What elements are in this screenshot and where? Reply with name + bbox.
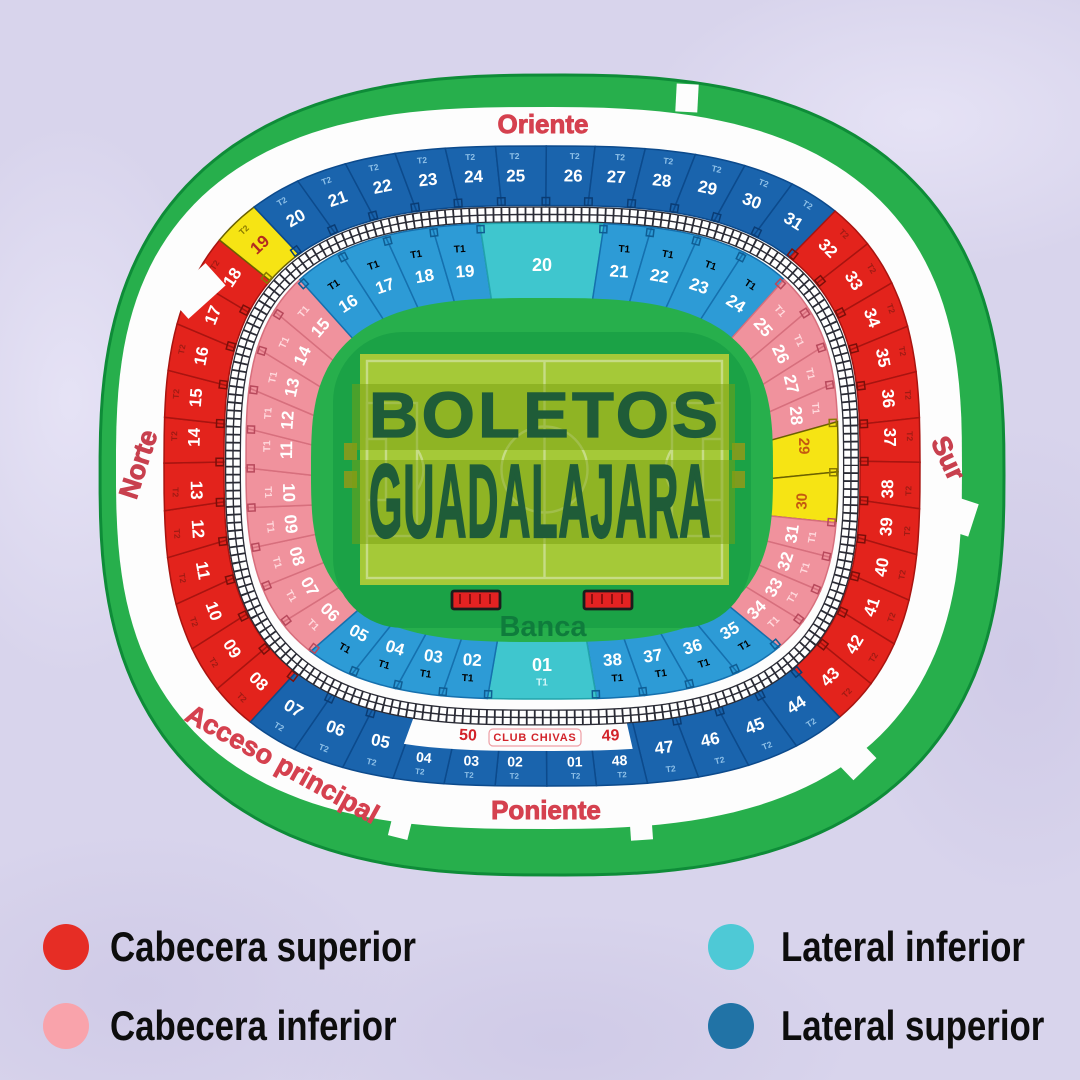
svg-text:38: 38 bbox=[603, 650, 623, 670]
svg-text:T1: T1 bbox=[611, 673, 624, 685]
svg-text:T2: T2 bbox=[171, 388, 182, 399]
svg-text:04: 04 bbox=[415, 749, 432, 767]
svg-text:29: 29 bbox=[795, 438, 812, 455]
svg-text:T1: T1 bbox=[262, 440, 273, 452]
svg-text:T1: T1 bbox=[809, 402, 821, 415]
svg-text:T2: T2 bbox=[465, 152, 476, 162]
svg-text:25: 25 bbox=[506, 166, 525, 185]
svg-text:21: 21 bbox=[609, 261, 629, 281]
svg-text:31: 31 bbox=[781, 523, 803, 545]
svg-text:05: 05 bbox=[369, 730, 391, 752]
svg-text:T2: T2 bbox=[903, 390, 914, 401]
svg-text:29: 29 bbox=[696, 177, 719, 200]
svg-text:T2: T2 bbox=[896, 569, 908, 581]
svg-text:T1: T1 bbox=[654, 668, 668, 681]
svg-text:T2: T2 bbox=[570, 151, 580, 161]
svg-text:T1: T1 bbox=[454, 244, 467, 256]
svg-text:T1: T1 bbox=[263, 407, 275, 420]
svg-text:01: 01 bbox=[532, 655, 552, 675]
svg-text:20: 20 bbox=[532, 255, 552, 275]
svg-text:T2: T2 bbox=[177, 572, 189, 584]
svg-text:T2: T2 bbox=[464, 771, 474, 780]
svg-text:T2: T2 bbox=[510, 772, 520, 781]
svg-text:Cabecera inferior: Cabecera inferior bbox=[110, 1003, 397, 1050]
svg-text:T2: T2 bbox=[615, 152, 626, 162]
svg-text:12: 12 bbox=[277, 410, 297, 430]
svg-text:03: 03 bbox=[423, 646, 444, 668]
svg-text:48: 48 bbox=[611, 752, 628, 769]
svg-text:T1: T1 bbox=[419, 668, 433, 681]
svg-text:01: 01 bbox=[567, 753, 583, 769]
svg-text:22: 22 bbox=[371, 176, 393, 198]
svg-text:T1: T1 bbox=[461, 673, 474, 685]
svg-text:T2: T2 bbox=[905, 431, 915, 441]
svg-text:Lateral inferior: Lateral inferior bbox=[781, 924, 1025, 971]
svg-text:Lateral superior: Lateral superior bbox=[781, 1003, 1044, 1050]
svg-text:T2: T2 bbox=[169, 431, 179, 441]
svg-text:49: 49 bbox=[601, 727, 620, 745]
svg-text:T1: T1 bbox=[410, 249, 424, 262]
svg-text:T2: T2 bbox=[665, 763, 676, 774]
svg-text:10: 10 bbox=[279, 483, 298, 502]
svg-text:36: 36 bbox=[878, 388, 898, 408]
svg-text:T2: T2 bbox=[902, 526, 913, 537]
svg-text:50: 50 bbox=[459, 727, 478, 745]
svg-text:35: 35 bbox=[872, 347, 894, 369]
svg-text:37: 37 bbox=[880, 428, 899, 447]
svg-text:39: 39 bbox=[876, 517, 896, 537]
svg-text:T2: T2 bbox=[571, 772, 581, 781]
svg-text:23: 23 bbox=[418, 169, 439, 190]
svg-text:28: 28 bbox=[651, 170, 672, 191]
svg-text:40: 40 bbox=[871, 556, 893, 578]
svg-text:T2: T2 bbox=[171, 487, 181, 497]
svg-text:Poniente: Poniente bbox=[491, 795, 601, 825]
svg-text:11: 11 bbox=[192, 560, 214, 581]
svg-text:T1: T1 bbox=[262, 486, 273, 498]
svg-text:02: 02 bbox=[507, 753, 523, 769]
svg-text:Cabecera superior: Cabecera superior bbox=[110, 924, 416, 971]
svg-text:T2: T2 bbox=[617, 770, 627, 779]
svg-text:T2: T2 bbox=[172, 528, 183, 539]
svg-text:19: 19 bbox=[455, 261, 475, 281]
svg-text:T1: T1 bbox=[618, 244, 631, 256]
svg-text:T1: T1 bbox=[536, 678, 548, 689]
svg-text:Oriente: Oriente bbox=[497, 109, 588, 139]
svg-text:02: 02 bbox=[462, 650, 482, 670]
svg-text:37: 37 bbox=[642, 645, 664, 667]
svg-text:T1: T1 bbox=[264, 521, 276, 534]
svg-text:16: 16 bbox=[190, 345, 212, 367]
svg-text:T2: T2 bbox=[510, 151, 520, 161]
svg-text:13: 13 bbox=[187, 481, 206, 500]
svg-text:14: 14 bbox=[185, 427, 204, 447]
svg-text:12: 12 bbox=[188, 519, 208, 539]
svg-text:18: 18 bbox=[414, 265, 436, 287]
svg-text:27: 27 bbox=[606, 167, 626, 187]
svg-text:26: 26 bbox=[564, 166, 583, 185]
svg-text:BOLETOS: BOLETOS bbox=[369, 380, 721, 451]
svg-text:13: 13 bbox=[281, 376, 304, 399]
svg-text:GUADALAJARA: GUADALAJARA bbox=[369, 443, 711, 559]
svg-text:03: 03 bbox=[463, 752, 479, 769]
svg-text:T2: T2 bbox=[903, 486, 913, 496]
svg-text:CLUB CHIVAS: CLUB CHIVAS bbox=[493, 732, 576, 744]
svg-text:11: 11 bbox=[277, 441, 296, 459]
svg-text:24: 24 bbox=[464, 167, 484, 187]
svg-text:T1: T1 bbox=[661, 249, 675, 262]
svg-text:T1: T1 bbox=[807, 530, 820, 544]
svg-text:47: 47 bbox=[654, 737, 675, 758]
svg-text:22: 22 bbox=[649, 265, 671, 287]
svg-text:T2: T2 bbox=[663, 155, 674, 166]
svg-text:09: 09 bbox=[280, 514, 301, 535]
svg-text:T2: T2 bbox=[415, 767, 426, 777]
svg-text:15: 15 bbox=[186, 388, 206, 408]
svg-text:38: 38 bbox=[878, 479, 897, 498]
svg-text:30: 30 bbox=[793, 493, 811, 510]
svg-text:T2: T2 bbox=[417, 155, 428, 166]
svg-text:28: 28 bbox=[786, 405, 807, 426]
svg-text:Banca: Banca bbox=[499, 611, 587, 643]
